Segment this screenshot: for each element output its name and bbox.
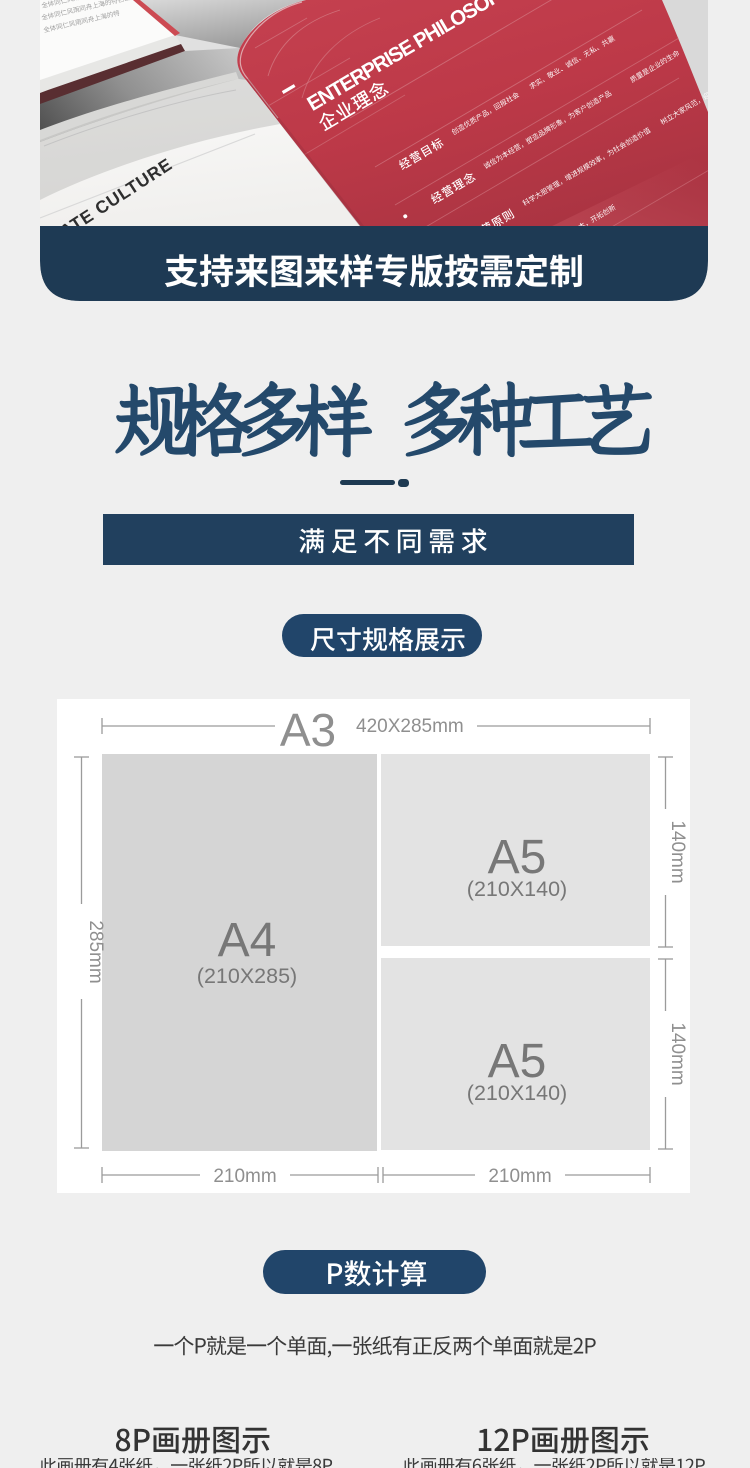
svg-text:A3: A3: [280, 704, 336, 756]
svg-text:210mm: 210mm: [213, 1166, 276, 1187]
svg-text:(210X140): (210X140): [467, 877, 567, 901]
svg-text:285mm: 285mm: [85, 920, 106, 983]
svg-text:A4: A4: [218, 914, 277, 967]
svg-text:210mm: 210mm: [488, 1166, 551, 1187]
svg-text:(210X140): (210X140): [467, 1081, 567, 1105]
svg-text:140mm: 140mm: [667, 1022, 688, 1085]
svg-text:420X285mm: 420X285mm: [356, 716, 464, 737]
svg-text:(210X285): (210X285): [197, 964, 297, 988]
svg-text:140mm: 140mm: [667, 820, 688, 883]
